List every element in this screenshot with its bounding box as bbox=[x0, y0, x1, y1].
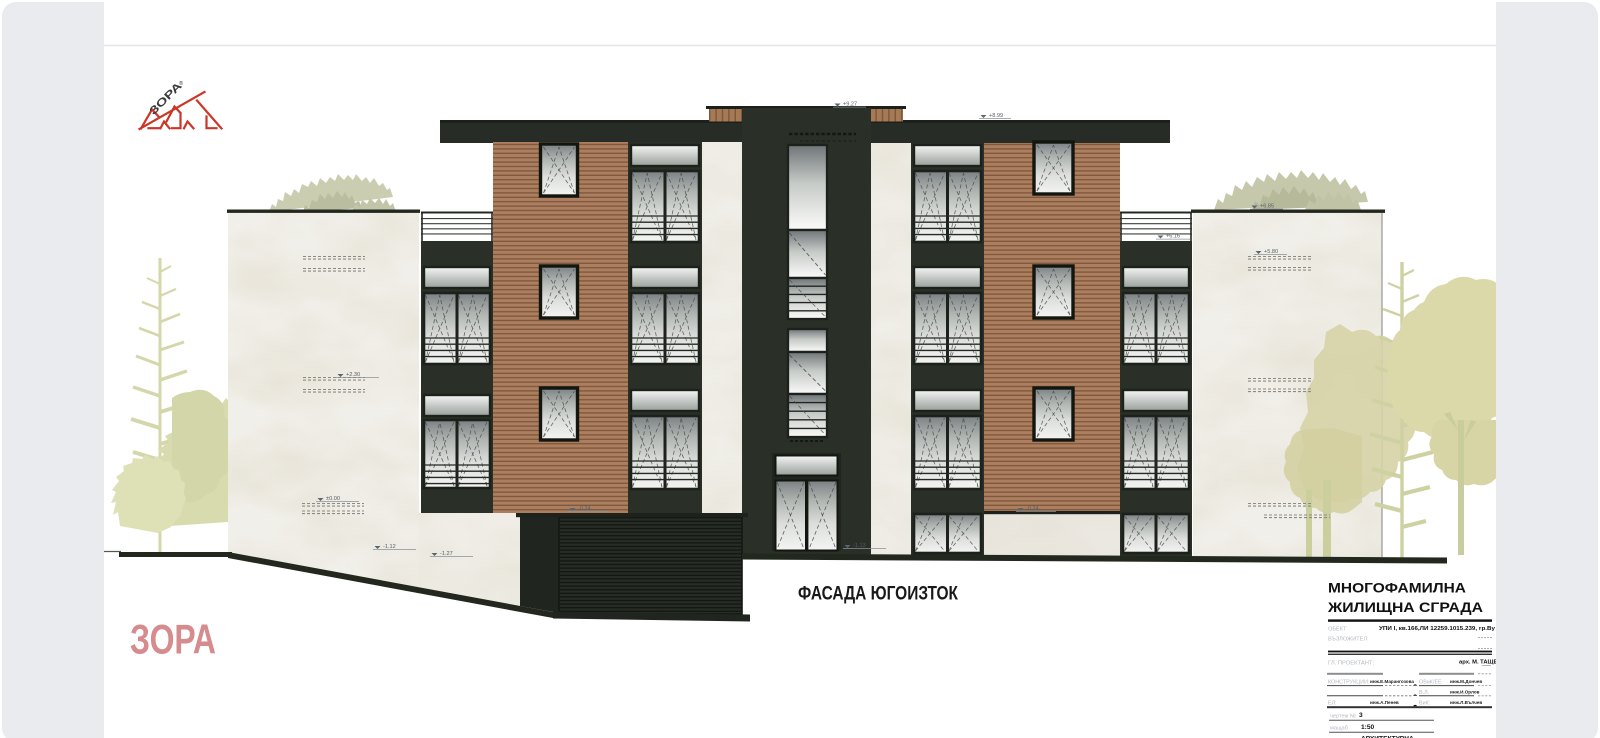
svg-text:МНОГОФАМИЛНА: МНОГОФАМИЛНА bbox=[1328, 581, 1466, 596]
svg-text:-1.27: -1.27 bbox=[440, 551, 453, 557]
svg-text:УПИ I, кв.166,ЛИ 12259.1015.23: УПИ I, кв.166,ЛИ 12259.1015.239, гр.Ву bbox=[1379, 626, 1496, 632]
svg-text:ЗОРА: ЗОРА bbox=[130, 616, 216, 663]
svg-text:-1.13: -1.13 bbox=[853, 543, 866, 549]
svg-text:±0.00: ±0.00 bbox=[326, 496, 340, 502]
svg-text:ЖИЛИЩНА СГРАДА: ЖИЛИЩНА СГРАДА bbox=[1327, 600, 1483, 615]
svg-text:В.Л.: В.Л. bbox=[1419, 690, 1429, 696]
svg-text:3: 3 bbox=[1359, 712, 1363, 719]
svg-text:ВиК:: ВиК: bbox=[1419, 701, 1430, 707]
svg-text:1:50: 1:50 bbox=[1361, 724, 1375, 731]
svg-text:ЕЛ:: ЕЛ: bbox=[1328, 701, 1337, 707]
svg-text:инж.Л.Вълчев: инж.Л.Вълчев bbox=[1450, 700, 1482, 705]
svg-text:ОВиК/ЕЕ: ОВиК/ЕЕ bbox=[1419, 679, 1442, 685]
svg-text:+5.80: +5.80 bbox=[1264, 249, 1278, 255]
svg-text:чертеж №: чертеж № bbox=[1330, 714, 1356, 720]
svg-text:-0.24: -0.24 bbox=[578, 506, 591, 512]
svg-text:-1.12: -1.12 bbox=[383, 544, 396, 550]
svg-text:мащаб: мащаб bbox=[1330, 725, 1348, 731]
svg-text:инж.М.Дончев: инж.М.Дончев bbox=[1450, 679, 1482, 684]
svg-text:-0.24: -0.24 bbox=[1026, 506, 1039, 512]
svg-text:инж.Е.Марангозова: инж.Е.Марангозова bbox=[1370, 679, 1414, 684]
svg-text:+8.99: +8.99 bbox=[989, 113, 1003, 119]
svg-text:ВЪЗЛОЖИТЕЛ: ВЪЗЛОЖИТЕЛ bbox=[1328, 637, 1367, 643]
svg-text:ФАСАДА ЮГОИЗТОК: ФАСАДА ЮГОИЗТОК bbox=[798, 583, 958, 605]
svg-text:ОБЕКТ: ОБЕКТ bbox=[1328, 626, 1347, 632]
svg-text:арх. М. ТАЩЕ: арх. М. ТАЩЕ bbox=[1459, 660, 1497, 666]
svg-text:+6.16: +6.16 bbox=[1166, 234, 1180, 240]
svg-text:инж.А.Пенев: инж.А.Пенев bbox=[1370, 700, 1399, 705]
svg-text:инж.И.Орлов: инж.И.Орлов bbox=[1450, 689, 1480, 694]
svg-text:+9.27: +9.27 bbox=[843, 102, 857, 108]
svg-text:+6.85: +6.85 bbox=[1260, 204, 1274, 210]
svg-text:КОНСТРУКЦИИ:: КОНСТРУКЦИИ: bbox=[1328, 679, 1369, 685]
svg-text:ГЛ. ПРОЕКТАНТ:: ГЛ. ПРОЕКТАНТ: bbox=[1328, 660, 1374, 666]
